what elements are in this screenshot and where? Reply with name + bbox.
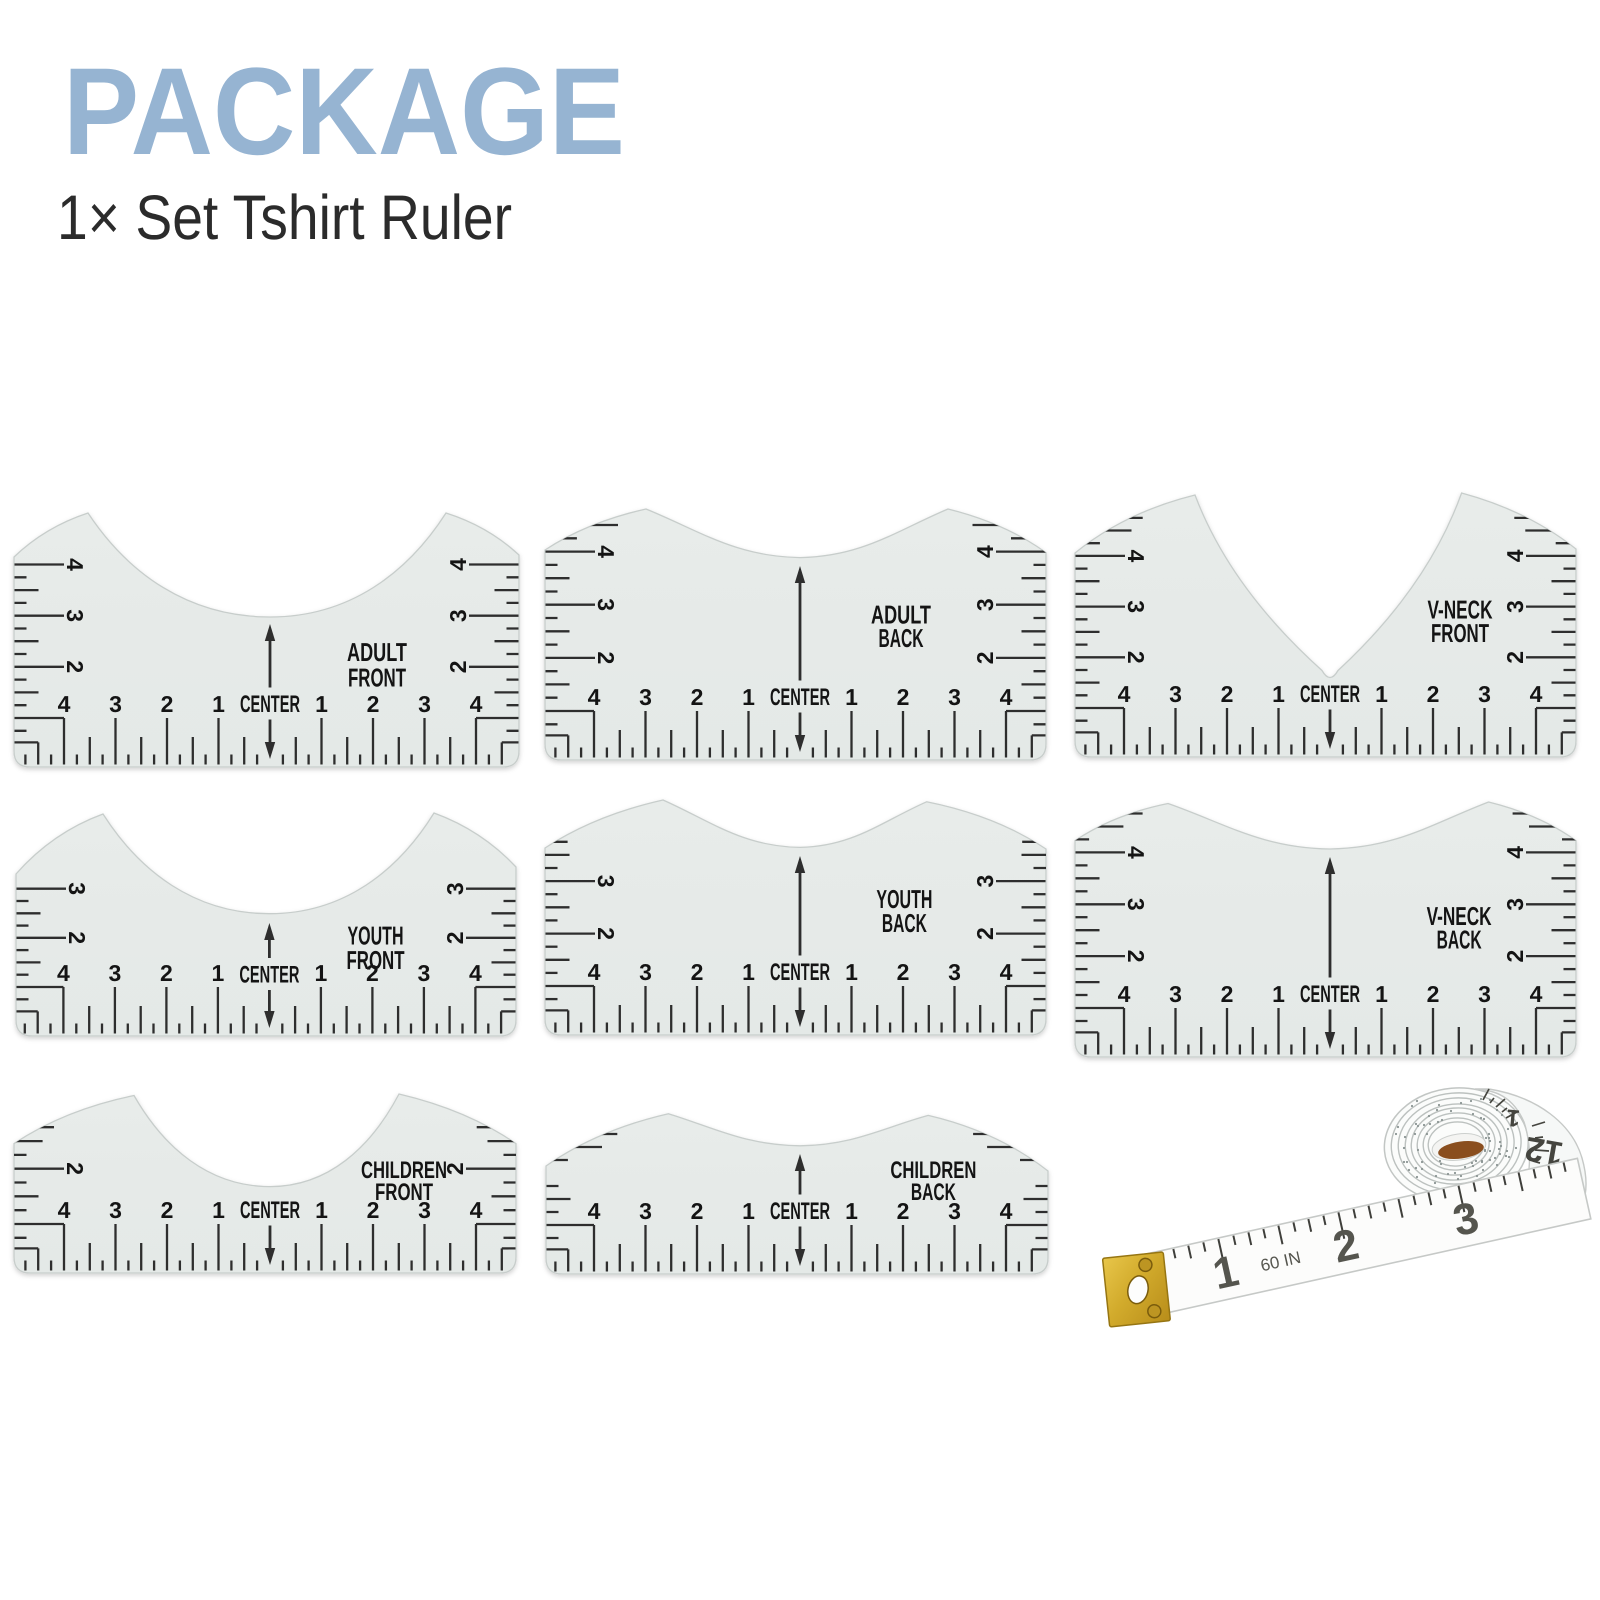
svg-text:1: 1 — [1272, 681, 1285, 707]
svg-text:CENTER: CENTER — [240, 691, 300, 718]
svg-text:2: 2 — [161, 1197, 174, 1223]
svg-text:4: 4 — [58, 1197, 71, 1223]
svg-text:2: 2 — [367, 691, 380, 717]
svg-text:BACK: BACK — [1437, 925, 1482, 955]
svg-text:4: 4 — [62, 558, 88, 571]
svg-text:4: 4 — [1123, 550, 1149, 563]
svg-text:FRONT: FRONT — [348, 663, 406, 693]
svg-text:1: 1 — [1506, 1103, 1522, 1131]
svg-text:2: 2 — [64, 931, 90, 944]
svg-text:4: 4 — [470, 1197, 483, 1223]
svg-text:CENTER: CENTER — [770, 959, 830, 986]
svg-text:1: 1 — [315, 691, 328, 717]
svg-text:2: 2 — [972, 652, 998, 665]
svg-text:3: 3 — [109, 691, 122, 717]
svg-text:2: 2 — [160, 960, 173, 986]
svg-text:4: 4 — [1502, 846, 1528, 859]
svg-text:3: 3 — [1478, 681, 1491, 707]
svg-text:2: 2 — [897, 959, 910, 985]
svg-text:1: 1 — [742, 684, 755, 710]
svg-text:4: 4 — [445, 558, 471, 571]
svg-text:4: 4 — [1502, 549, 1528, 562]
svg-text:1× Set Tshirt Ruler: 1× Set Tshirt Ruler — [57, 183, 512, 253]
svg-text:FRONT: FRONT — [375, 1179, 433, 1206]
svg-text:3: 3 — [445, 609, 471, 622]
svg-text:CENTER: CENTER — [1300, 981, 1360, 1008]
svg-text:2: 2 — [897, 1198, 910, 1224]
svg-text:2: 2 — [161, 691, 174, 717]
svg-text:1: 1 — [212, 691, 225, 717]
svg-text:2: 2 — [445, 660, 471, 673]
svg-text:1: 1 — [845, 684, 858, 710]
svg-text:4: 4 — [57, 960, 70, 986]
svg-text:3: 3 — [1123, 600, 1149, 613]
svg-text:2: 2 — [1123, 651, 1149, 664]
svg-text:4: 4 — [588, 959, 601, 985]
svg-text:1: 1 — [315, 1197, 328, 1223]
svg-text:4: 4 — [972, 545, 998, 558]
svg-text:FRONT: FRONT — [1431, 618, 1489, 648]
svg-text:4: 4 — [470, 691, 483, 717]
svg-text:3: 3 — [593, 598, 619, 611]
svg-text:1: 1 — [742, 959, 755, 985]
svg-text:3: 3 — [972, 598, 998, 611]
svg-text:3: 3 — [418, 691, 431, 717]
svg-text:1: 1 — [1272, 981, 1285, 1007]
svg-text:2: 2 — [1502, 651, 1528, 664]
svg-text:3: 3 — [948, 959, 961, 985]
svg-text:CENTER: CENTER — [770, 684, 830, 711]
svg-text:3: 3 — [639, 1198, 652, 1224]
svg-text:FRONT: FRONT — [347, 945, 405, 975]
svg-text:4: 4 — [1118, 981, 1131, 1007]
svg-text:4: 4 — [1123, 846, 1149, 859]
svg-text:1: 1 — [212, 960, 225, 986]
svg-text:BACK: BACK — [911, 1179, 956, 1206]
svg-text:3: 3 — [1169, 681, 1182, 707]
svg-text:4: 4 — [1530, 981, 1543, 1007]
svg-text:4: 4 — [58, 691, 71, 717]
svg-text:BACK: BACK — [879, 623, 924, 653]
svg-text:3: 3 — [948, 684, 961, 710]
svg-text:2: 2 — [593, 927, 619, 940]
svg-text:2: 2 — [691, 1198, 704, 1224]
svg-text:3: 3 — [1123, 898, 1149, 911]
svg-text:CENTER: CENTER — [240, 1197, 300, 1224]
svg-text:4: 4 — [588, 1198, 601, 1224]
svg-text:3: 3 — [64, 882, 90, 895]
svg-text:2: 2 — [1502, 950, 1528, 963]
svg-text:1: 1 — [212, 1197, 225, 1223]
svg-text:2: 2 — [897, 684, 910, 710]
svg-text:2: 2 — [1427, 681, 1440, 707]
svg-text:1: 1 — [1375, 981, 1388, 1007]
svg-text:4: 4 — [1000, 684, 1013, 710]
svg-text:3: 3 — [639, 959, 652, 985]
svg-text:2: 2 — [972, 927, 998, 940]
svg-text:4: 4 — [1530, 681, 1543, 707]
svg-text:3: 3 — [418, 960, 431, 986]
svg-text:3: 3 — [1502, 600, 1528, 613]
svg-text:1: 1 — [742, 1198, 755, 1224]
svg-text:2: 2 — [1221, 681, 1234, 707]
svg-text:4: 4 — [593, 545, 619, 558]
svg-text:PACKAGE: PACKAGE — [63, 43, 625, 181]
svg-text:1: 1 — [845, 1198, 858, 1224]
svg-text:CENTER: CENTER — [239, 962, 299, 989]
svg-text:3: 3 — [593, 875, 619, 888]
svg-text:2: 2 — [691, 959, 704, 985]
svg-text:3: 3 — [1502, 898, 1528, 911]
svg-text:4: 4 — [1000, 959, 1013, 985]
svg-text:2: 2 — [593, 652, 619, 665]
svg-text:4: 4 — [1118, 681, 1131, 707]
svg-text:BACK: BACK — [882, 908, 927, 938]
svg-text:1: 1 — [1375, 681, 1388, 707]
svg-text:2: 2 — [1221, 981, 1234, 1007]
svg-text:CENTER: CENTER — [770, 1198, 830, 1225]
svg-text:4: 4 — [588, 684, 601, 710]
svg-text:2: 2 — [62, 1162, 88, 1175]
svg-text:CENTER: CENTER — [1300, 681, 1360, 708]
svg-text:3: 3 — [639, 684, 652, 710]
svg-text:2: 2 — [1427, 981, 1440, 1007]
svg-text:3: 3 — [62, 609, 88, 622]
svg-text:3: 3 — [109, 1197, 122, 1223]
svg-text:3: 3 — [109, 960, 122, 986]
svg-text:2: 2 — [691, 684, 704, 710]
svg-text:2: 2 — [442, 931, 468, 944]
svg-text:3: 3 — [442, 882, 468, 895]
svg-text:2: 2 — [62, 660, 88, 673]
svg-text:3: 3 — [1169, 981, 1182, 1007]
svg-text:3: 3 — [972, 875, 998, 888]
svg-text:1: 1 — [845, 959, 858, 985]
svg-text:3: 3 — [1478, 981, 1491, 1007]
svg-text:2: 2 — [1123, 950, 1149, 963]
svg-text:4: 4 — [469, 960, 482, 986]
svg-text:4: 4 — [1000, 1198, 1013, 1224]
svg-text:1: 1 — [315, 960, 328, 986]
